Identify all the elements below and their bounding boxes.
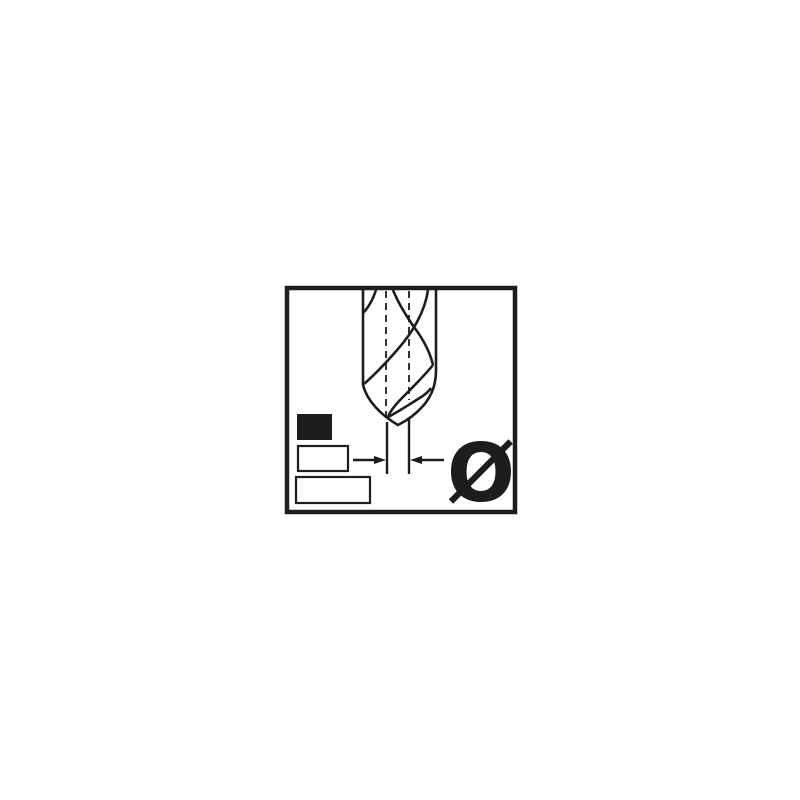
legend-swatch-outline-large (296, 477, 370, 503)
legend-swatch-filled (297, 414, 332, 440)
diameter-symbol: Ø (447, 427, 515, 520)
product-image-background: Ø (0, 0, 800, 800)
legend-swatch-outline-small (298, 446, 348, 471)
drill-diameter-pictogram: Ø (0, 0, 800, 800)
